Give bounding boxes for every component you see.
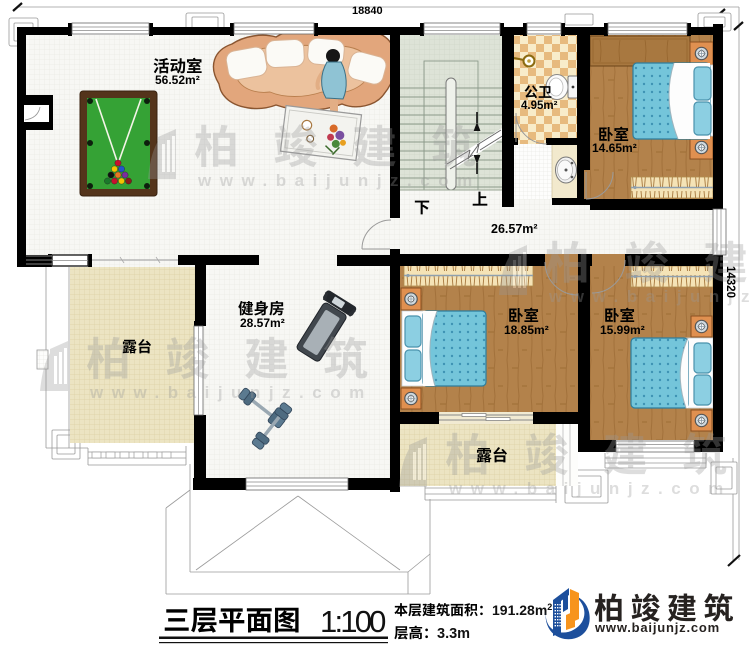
svg-text:4.95m²: 4.95m² xyxy=(521,100,558,112)
svg-text:14320: 14320 xyxy=(724,266,736,298)
svg-text:56.52m²: 56.52m² xyxy=(155,73,200,87)
svg-text:www.baijunjz.com: www.baijunjz.com xyxy=(197,171,481,190)
svg-text:www.baijunjz.com: www.baijunjz.com xyxy=(89,383,373,402)
svg-text:14.65m²: 14.65m² xyxy=(592,141,637,155)
svg-text:www.baijunjz.com: www.baijunjz.com xyxy=(594,620,720,635)
svg-text:18.85m²: 18.85m² xyxy=(504,323,549,337)
svg-text:3.3m: 3.3m xyxy=(437,626,470,642)
svg-text:www.baijunjz.com: www.baijunjz.com xyxy=(448,479,732,498)
svg-text:15.99m²: 15.99m² xyxy=(600,323,645,337)
svg-text:1:100: 1:100 xyxy=(320,604,386,639)
svg-text:www.baijunjz.com: www.baijunjz.com xyxy=(548,287,750,306)
svg-text:26.57m²: 26.57m² xyxy=(491,222,538,236)
svg-text:18840: 18840 xyxy=(352,5,383,17)
svg-text:191.28m2: 191.28m2 xyxy=(492,602,552,618)
svg-text:28.57m²: 28.57m² xyxy=(240,316,285,330)
